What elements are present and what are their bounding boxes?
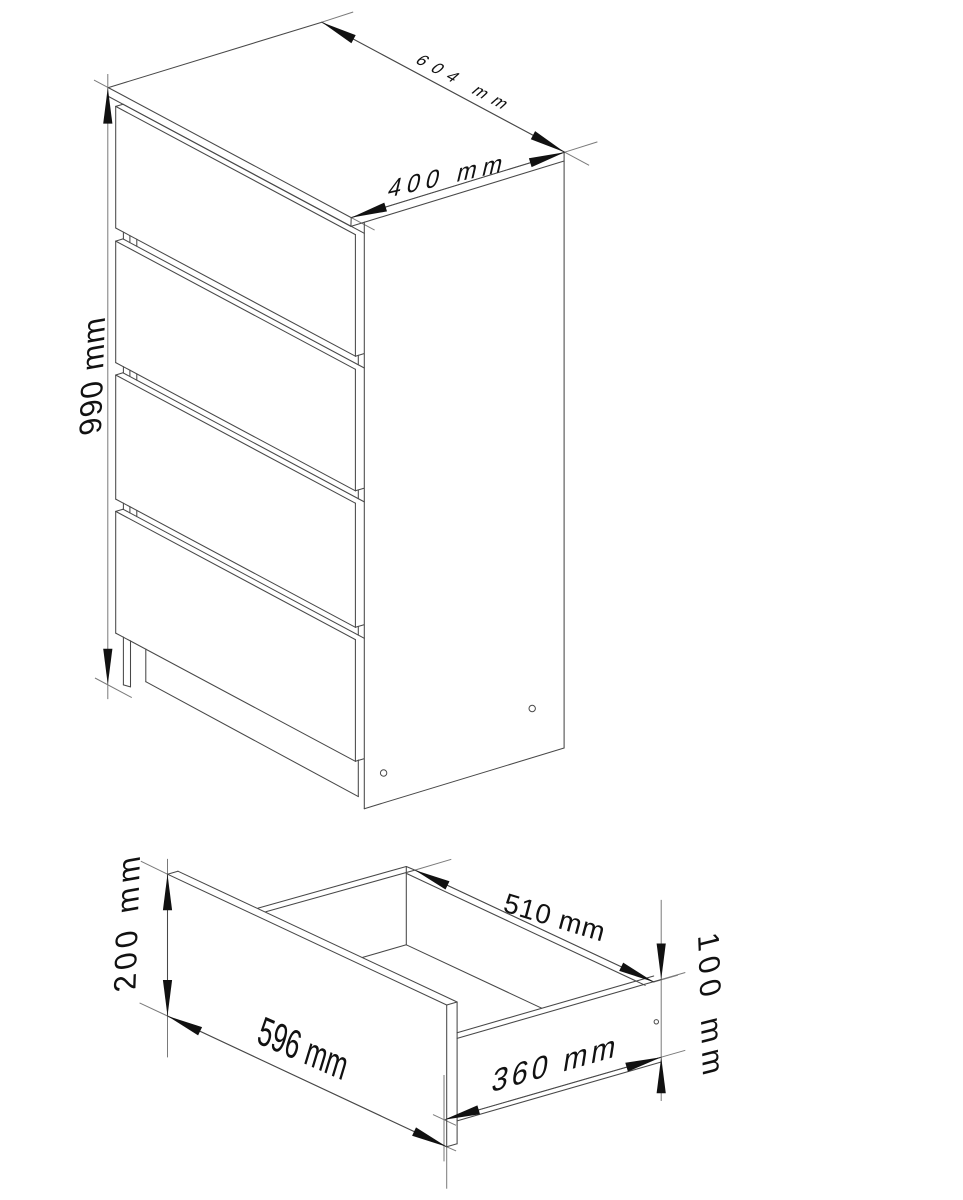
svg-text:200 mm: 200 mm [107,850,147,995]
svg-text:100 mm: 100 mm [691,929,729,1084]
svg-text:990 mm: 990 mm [73,314,112,438]
